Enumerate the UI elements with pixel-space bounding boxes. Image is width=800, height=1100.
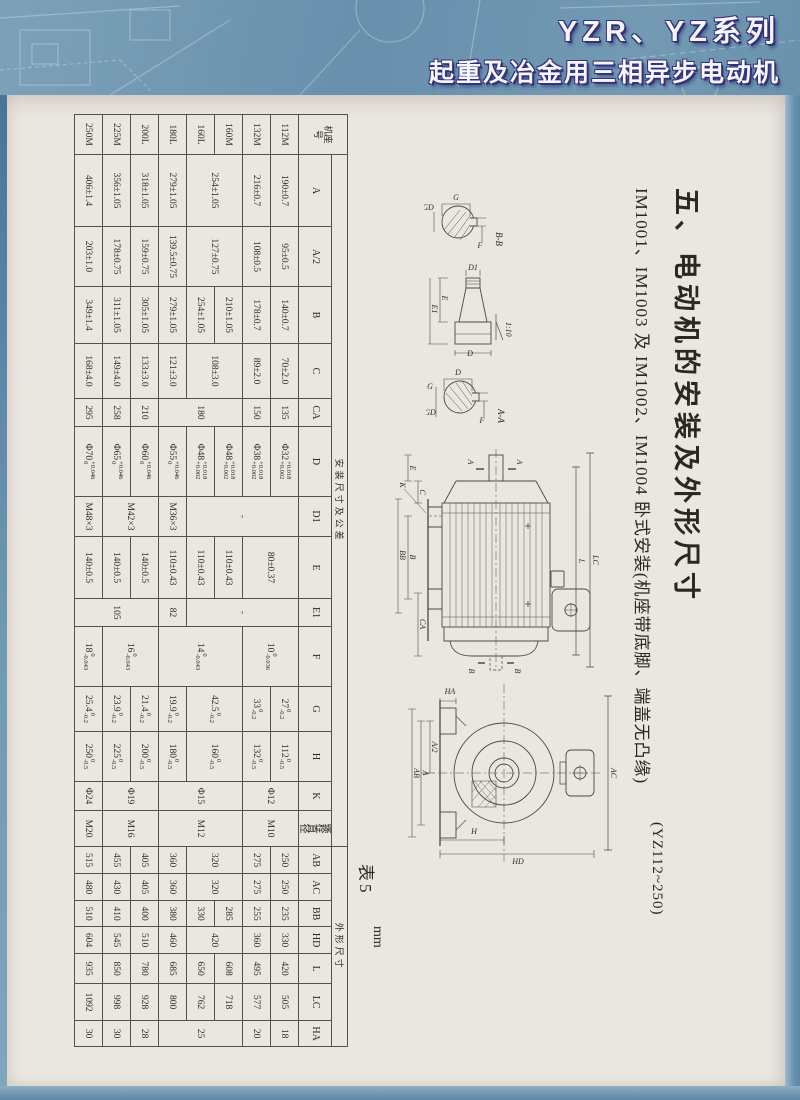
table-column-header: LC [299, 984, 332, 1021]
dim-label-f: F [477, 241, 483, 250]
table-cell: Φ24 [75, 782, 103, 811]
table-cell: M16 [103, 811, 159, 847]
table-cell: 928 [131, 984, 159, 1021]
dim-label-k: K [398, 481, 407, 488]
table-cell: 25.40-0.2 [75, 687, 103, 732]
table-cell: 2250-0.5 [103, 732, 131, 782]
table-cell: 70±2.0 [271, 344, 299, 399]
dim-label-d: D [454, 368, 461, 377]
dim-label-a: A [421, 770, 430, 776]
section-bb-label: B-B [494, 232, 504, 246]
frame-row-header: 160L [187, 115, 215, 155]
table-column-header: H [299, 732, 332, 782]
table-cell: 410 [103, 901, 131, 927]
table-cell: Φ65+0.0460 [103, 427, 131, 497]
shaft-section-bb-drawing: B-B G GD F [424, 192, 508, 260]
section-mark-a: A [515, 459, 524, 465]
table-cell: 180-0.043 [75, 627, 103, 687]
table-cell: 330 [271, 927, 299, 954]
table-cell: Φ38+0.018+0.002 [243, 427, 271, 497]
section-subtitle: IM1001、IM1003 及 IM1002、IM1004 卧式安装(机座带底脚… [631, 188, 656, 784]
table-cell: 28 [131, 1021, 159, 1047]
table-cell: Φ32+0.018+0.002 [271, 427, 299, 497]
dim-label-ca: CA [418, 619, 427, 629]
table-cell: 140±0.5 [103, 537, 131, 599]
table-cell: 21.40-0.2 [131, 687, 159, 732]
table-cell: 270-0.2 [271, 687, 299, 732]
table-cell: 330 [187, 901, 215, 927]
table-cell: 360 [159, 847, 187, 874]
table-cell: 279±1.05 [159, 155, 187, 227]
table-cell: 460 [159, 927, 187, 954]
table-column-header: 螺栓直径 [299, 811, 332, 847]
table-cell: - [187, 497, 299, 537]
table-column-header: AC [299, 874, 332, 901]
table-cell: 718 [215, 984, 243, 1021]
table-row: 250M406±1.4203±1.0349±1.4168±4.0295Φ70+0… [75, 115, 103, 1047]
table-cell: 30 [75, 1021, 103, 1047]
table-cell: Φ48+0.018+0.002 [187, 427, 215, 497]
table-cell: 480 [75, 874, 103, 901]
cover-edge-right [785, 95, 800, 1100]
frame-row-header: 250M [75, 115, 103, 155]
table-cell: 305±1.05 [131, 287, 159, 344]
table-cell: 168±4.0 [75, 344, 103, 399]
table-cell: 89±2.0 [243, 344, 271, 399]
table-cell: Φ12 [243, 782, 299, 811]
dim-label-d1: D1 [467, 264, 478, 272]
table-cell: 311±1.05 [103, 287, 131, 344]
dim-label-hd: HD [511, 857, 524, 866]
table-cell: 780 [131, 954, 159, 984]
table-column-header: G [299, 687, 332, 732]
table-group-header: 安装尺寸及公差 [332, 155, 348, 847]
table-corner-header: 机座号 [299, 115, 348, 155]
dim-label-e: E [440, 295, 449, 301]
dim-label-e: E [408, 465, 417, 471]
cover-edge-left [0, 95, 7, 1100]
table-cell: 400 [131, 901, 159, 927]
table-cell: Φ48+0.018+0.002 [215, 427, 243, 497]
table-cell: 505 [271, 984, 299, 1021]
table-cell: 515 [75, 847, 103, 874]
table-cell: 140±0.7 [271, 287, 299, 344]
table-cell: 210±1.05 [215, 287, 243, 344]
dim-label-ab: AB [412, 767, 421, 778]
table-cell: 356±1.05 [103, 155, 131, 227]
frame-row-header: 225M [103, 115, 131, 155]
series-title: YZR、YZ系列 [429, 8, 780, 50]
table-cell: 110±0.43 [159, 537, 187, 599]
table-cell: 320 [187, 874, 243, 901]
table-column-header: L [299, 954, 332, 984]
dim-label-b: B [408, 555, 417, 560]
dimensions-table-wrap: 机座号安装尺寸及公差外形尺寸AA/2BCCADD1EE1FGHK螺栓直径ABAC… [74, 114, 348, 1047]
table-cell: 406±1.4 [75, 155, 103, 227]
table-column-header: C [299, 344, 332, 399]
table-cell: 285 [215, 901, 243, 927]
table-cell: 25 [159, 1021, 243, 1047]
rotated-page-content: 五、电动机的安装及外形尺寸 IM1001、IM1003 及 IM1002、IM1… [95, 110, 720, 1060]
section-title: 五、电动机的安装及外形尺寸 [669, 188, 708, 604]
table-cell: 420 [187, 927, 243, 954]
table-cell: M20 [75, 811, 103, 847]
table-caption: 表5 [355, 864, 380, 896]
table-cell: 455 [103, 847, 131, 874]
table-cell: 577 [243, 984, 271, 1021]
table-cell: 495 [243, 954, 271, 984]
table-cell: 608 [215, 954, 243, 984]
table-cell: Φ15 [159, 782, 243, 811]
table-cell: 1600-0.5 [187, 732, 243, 782]
shaft-section-aa-drawing: A-A D G GD F [426, 365, 510, 437]
table-column-header: D1 [299, 497, 332, 537]
table-cell: 318±1.05 [131, 155, 159, 227]
table-cell: 149±4.0 [103, 344, 131, 399]
table-cell: 160-0.043 [103, 627, 159, 687]
section-aa-label: A-A [496, 408, 506, 423]
table-cell: 998 [103, 984, 131, 1021]
table-column-header: D [299, 427, 332, 497]
table-cell: 105 [75, 599, 159, 627]
table-cell: 95±0.5 [271, 227, 299, 287]
table-cell: M36×3 [159, 497, 187, 537]
table-cell: 110±0.43 [215, 537, 243, 599]
table-cell: Φ60+0.0460 [131, 427, 159, 497]
table-cell: 850 [103, 954, 131, 984]
table-cell: 1120-0.5 [271, 732, 299, 782]
table-cell: 405 [131, 874, 159, 901]
dim-label-f: F [479, 416, 485, 425]
dim-label-g: G [453, 193, 459, 202]
table-row: 112M190±0.795±0.5140±0.770±2.0135Φ32+0.0… [271, 115, 299, 1047]
table-cell: 178±0.75 [103, 227, 131, 287]
table-cell: 255 [243, 901, 271, 927]
table-cell: 1092 [75, 984, 103, 1021]
table-cell: 349±1.4 [75, 287, 103, 344]
frame-row-header: 132M [243, 115, 271, 155]
table-cell: M48×3 [75, 497, 103, 537]
table-cell: 420 [271, 954, 299, 984]
table-cell: M10 [243, 811, 299, 847]
table-cell: 275 [243, 847, 271, 874]
table-cell: 42.50-0.2 [187, 687, 243, 732]
table-column-header: E1 [299, 599, 332, 627]
table-cell: 800 [159, 984, 187, 1021]
table-cell: 254±1.05 [187, 287, 215, 344]
table-group-header: 外形尺寸 [332, 847, 348, 1047]
table-cell: 430 [103, 874, 131, 901]
series-subtitle: 起重及冶金用三相异步电动机 [429, 53, 780, 89]
table-cell: 18 [271, 1021, 299, 1047]
table-cell: 405 [131, 847, 159, 874]
dim-label-gd: GD [424, 203, 434, 212]
scanned-catalog-page: YZR、YZ系列 起重及冶金用三相异步电动机 五、电动机的安装及外形尺寸 IM1… [0, 0, 800, 1100]
table-column-header: F [299, 627, 332, 687]
table-column-header: HD [299, 927, 332, 954]
table-cell: 108±0.5 [243, 227, 271, 287]
table-cell: 380 [159, 901, 187, 927]
table-cell: 279±1.05 [159, 287, 187, 344]
table-cell: 140±0.5 [75, 537, 103, 599]
table-cell: 127±0.75 [187, 227, 243, 287]
cover-title-block: YZR、YZ系列 起重及冶金用三相异步电动机 [429, 8, 780, 89]
table-cell: 80±0.37 [243, 537, 299, 599]
table-cell: 178±0.7 [243, 287, 271, 344]
dim-label-lc: LC [591, 554, 600, 565]
table-cell: 275 [243, 874, 271, 901]
table-cell: 360 [243, 927, 271, 954]
table-cell: 685 [159, 954, 187, 984]
table-cell: 159±0.75 [131, 227, 159, 287]
table-cell: Φ19 [103, 782, 159, 811]
table-cell: 320 [187, 847, 243, 874]
table-cell: 110±0.43 [187, 537, 215, 599]
section-frame-range-note: (YZ112~250) [648, 822, 665, 916]
table-cell: Φ55+0.0460 [159, 427, 187, 497]
table-cell: 19.90-0.2 [159, 687, 187, 732]
table-cell: 510 [131, 927, 159, 954]
table-cell: 360 [159, 874, 187, 901]
table-cell: 203±1.0 [75, 227, 103, 287]
table-cell: 510 [75, 901, 103, 927]
table-cell: 545 [103, 927, 131, 954]
table-cell: M42×3 [103, 497, 159, 537]
table-cell: 140-0.043 [159, 627, 243, 687]
dimensions-table: 机座号安装尺寸及公差外形尺寸AA/2BCCADD1EE1FGHK螺栓直径ABAC… [74, 114, 348, 1047]
dim-label-gd: GD [426, 408, 436, 417]
dim-label-a2: A/2 [430, 740, 439, 752]
table-cell: 295 [75, 399, 103, 427]
table-column-header: CA [299, 399, 332, 427]
cover-edge-bottom [0, 1086, 800, 1100]
table-cell: 1320-0.5 [243, 732, 271, 782]
table-column-header: E [299, 537, 332, 599]
frame-row-header: 160M [215, 115, 243, 155]
table-row: 200L318±1.05159±0.75305±1.05133±3.0210Φ6… [131, 115, 159, 1047]
dim-label-l: L [577, 558, 586, 564]
table-unit: mm [369, 926, 385, 948]
table-cell: - [187, 599, 299, 627]
table-cell: M12 [159, 811, 243, 847]
cover-header: YZR、YZ系列 起重及冶金用三相异步电动机 [0, 0, 800, 97]
table-row: 180L279±1.05139.5±0.75279±1.05121±3.0Φ55… [159, 115, 187, 1047]
table-cell: 250 [271, 874, 299, 901]
dim-label-ha: HA [444, 687, 456, 696]
table-column-header: B [299, 287, 332, 344]
motor-side-view-drawing: LC L A A B B C CA B E BB K [394, 443, 614, 675]
table-cell: 133±3.0 [131, 344, 159, 399]
table-cell: 330-0.2 [243, 687, 271, 732]
table-cell: 250 [271, 847, 299, 874]
table-cell: 604 [75, 927, 103, 954]
table-cell: 108±3.0 [187, 344, 243, 399]
table-cell: 2500-0.5 [75, 732, 103, 782]
table-cell: 30 [103, 1021, 131, 1047]
dim-label-ac: AC [609, 767, 618, 779]
motor-end-view-drawing: AC HA A/2 A AB H HD [406, 668, 626, 878]
table-cell: 20 [243, 1021, 271, 1047]
table-cell: 2000-0.5 [131, 732, 159, 782]
table-column-header: AB [299, 847, 332, 874]
frame-row-header: 200L [131, 115, 159, 155]
table-column-header: A/2 [299, 227, 332, 287]
table-column-header: BB [299, 901, 332, 927]
table-cell: 23.90-0.2 [103, 687, 131, 732]
taper-shaft-detail-drawing: D1 1:10 E E1 D [424, 264, 518, 358]
dim-label-h: H [470, 827, 478, 836]
table-cell: 121±3.0 [159, 344, 187, 399]
table-column-header: K [299, 782, 332, 811]
table-row: 225M356±1.05178±0.75311±1.05149±4.0258Φ6… [103, 115, 131, 1047]
table-cell: 140±0.5 [131, 537, 159, 599]
table-column-header: A [299, 155, 332, 227]
table-column-header: HA [299, 1021, 332, 1047]
table-cell: 235 [271, 901, 299, 927]
table-cell: 190±0.7 [271, 155, 299, 227]
dim-label-c: C [418, 489, 427, 495]
section-mark-a: A [466, 459, 475, 465]
table-cell: 139.5±0.75 [159, 227, 187, 287]
table-cell: 180 [159, 399, 243, 427]
table-cell: 1800-0.5 [159, 732, 187, 782]
table-cell: 150 [243, 399, 271, 427]
frame-row-header: 180L [159, 115, 187, 155]
dim-label-d: D [466, 349, 473, 358]
table-cell: 258 [103, 399, 131, 427]
dim-label-g: G [427, 382, 433, 391]
table-cell: 210 [131, 399, 159, 427]
table-cell: 135 [271, 399, 299, 427]
table-cell: Φ70+0.0460 [75, 427, 103, 497]
table-cell: 762 [187, 984, 215, 1021]
table-cell: 650 [187, 954, 215, 984]
table-cell: 82 [159, 599, 187, 627]
table-row: 160M254±1.05127±0.75210±1.05108±3.0180Φ4… [215, 115, 243, 1047]
table-cell: 216±0.7 [243, 155, 271, 227]
table-cell: 935 [75, 954, 103, 984]
table-cell: 254±1.05 [187, 155, 243, 227]
dim-label-bb: BB [398, 550, 407, 560]
dim-label-e1: E1 [430, 304, 439, 314]
frame-row-header: 112M [271, 115, 299, 155]
table-cell: 100-0.036 [243, 627, 299, 687]
taper-ratio-label: 1:10 [504, 322, 513, 337]
